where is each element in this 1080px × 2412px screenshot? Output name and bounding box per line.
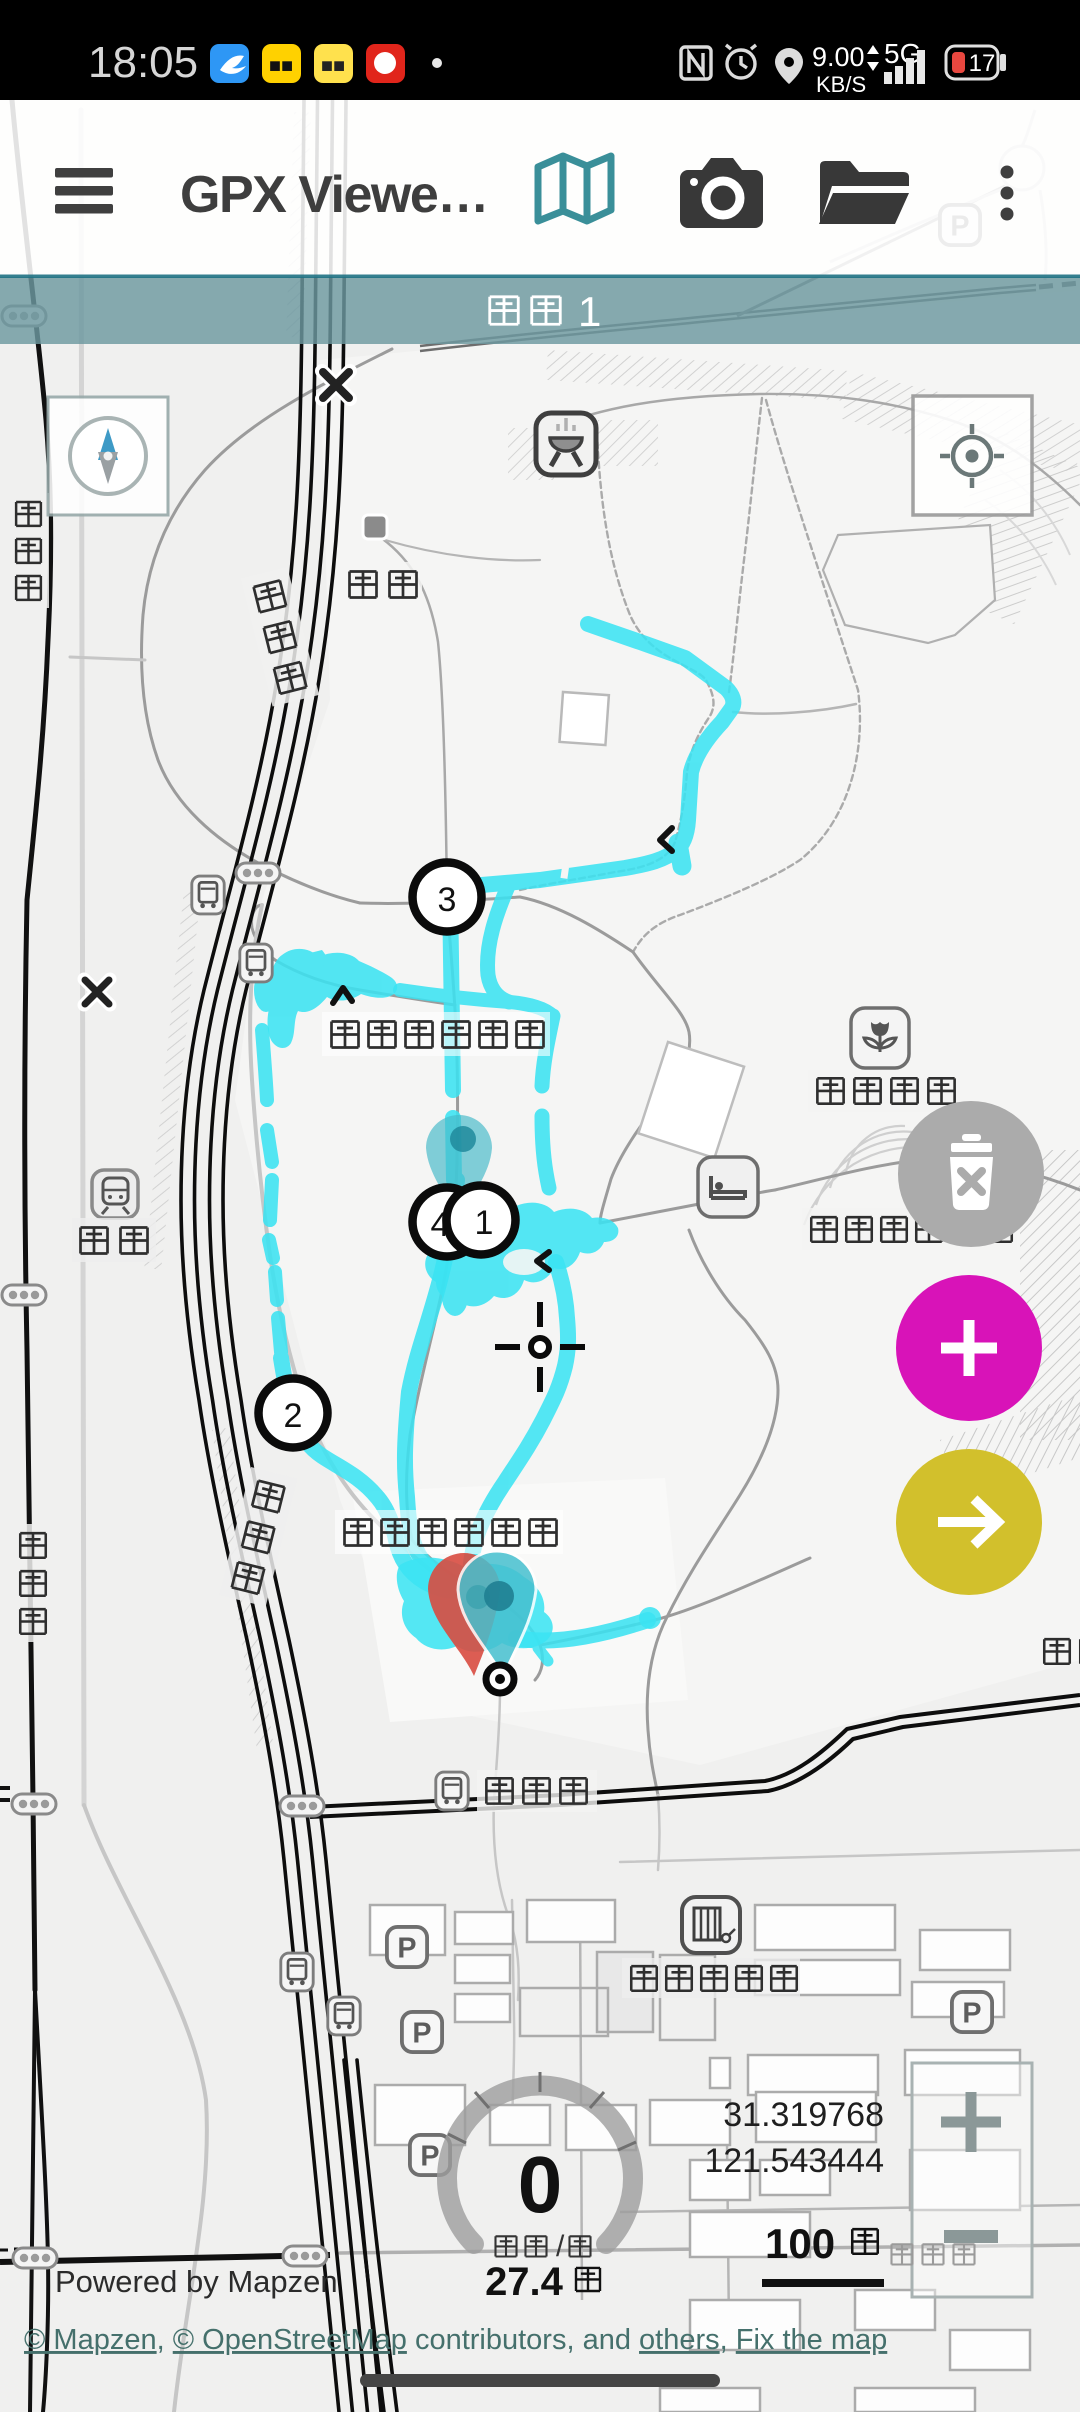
- svg-text:31.319768: 31.319768: [723, 2096, 884, 2134]
- svg-text:/: /: [556, 2230, 565, 2263]
- svg-text:17: 17: [969, 50, 996, 77]
- svg-text:0: 0: [518, 2140, 563, 2229]
- svg-text:9.00: 9.00: [812, 42, 865, 72]
- svg-text:5G: 5G: [884, 38, 921, 69]
- svg-text:Powered by Mapzen: Powered by Mapzen: [55, 2264, 338, 2299]
- svg-text:GPX Viewe…: GPX Viewe…: [180, 166, 488, 224]
- svg-text:■■: ■■: [321, 55, 345, 77]
- svg-text:■■: ■■: [269, 55, 293, 77]
- svg-text:2: 2: [284, 1397, 303, 1435]
- svg-text:1: 1: [578, 288, 601, 335]
- svg-text:18:05: 18:05: [88, 38, 198, 87]
- svg-text:© Mapzen, © OpenStreetMap cont: © Mapzen, © OpenStreetMap contributors, …: [24, 2324, 887, 2356]
- svg-text:3: 3: [438, 881, 457, 919]
- svg-text:121.543444: 121.543444: [704, 2142, 884, 2180]
- svg-text:27.4: 27.4: [485, 2260, 564, 2304]
- svg-text:100: 100: [765, 2220, 835, 2267]
- svg-text:1: 1: [475, 1204, 494, 1242]
- svg-text:KB/S: KB/S: [816, 72, 866, 97]
